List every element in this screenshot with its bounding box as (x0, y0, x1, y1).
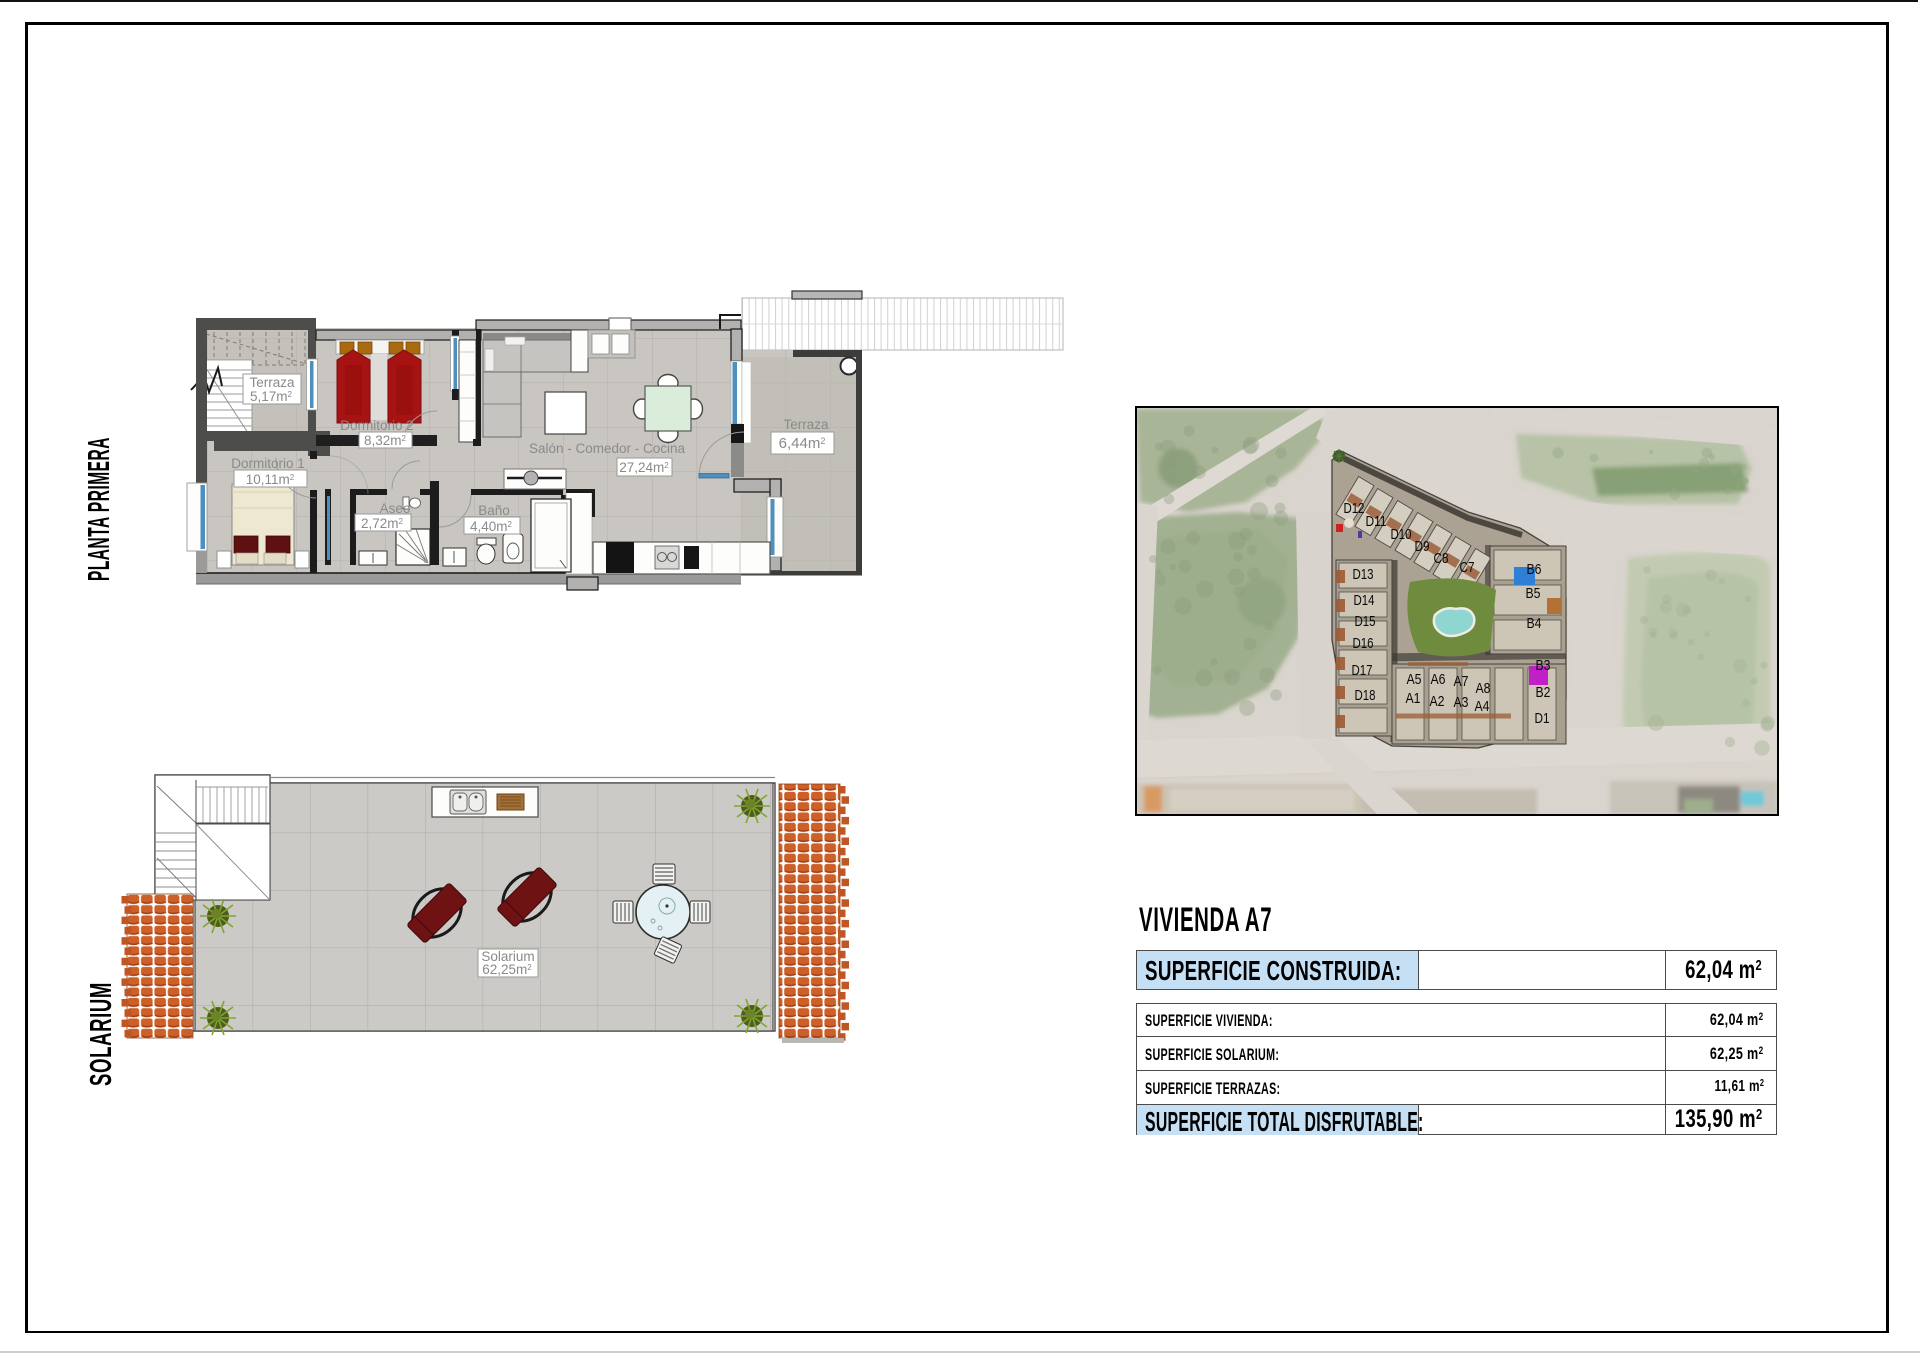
svg-text:D10: D10 (1391, 526, 1412, 543)
svg-text:Salón - Comedor - Cocina: Salón - Comedor - Cocina (529, 441, 686, 456)
svg-text:10,11m2: 10,11m2 (246, 472, 295, 487)
svg-text:D17: D17 (1352, 662, 1373, 679)
svg-text:D12: D12 (1344, 500, 1365, 517)
svg-text:Terraza: Terraza (783, 417, 829, 432)
svg-text:D16: D16 (1353, 635, 1374, 652)
svg-text:D11: D11 (1366, 513, 1387, 530)
svg-text:A2: A2 (1430, 693, 1445, 710)
svg-text:2,72m2: 2,72m2 (361, 516, 404, 531)
svg-text:D18: D18 (1355, 687, 1376, 704)
svg-text:Dormitorio 2: Dormitorio 2 (340, 418, 414, 433)
svg-text:C8: C8 (1434, 550, 1449, 567)
svg-text:B6: B6 (1527, 561, 1542, 578)
svg-text:5,17m2: 5,17m2 (250, 389, 293, 404)
svg-text:A4: A4 (1475, 698, 1490, 715)
svg-text:D9: D9 (1415, 538, 1430, 555)
svg-text:A3: A3 (1454, 694, 1469, 711)
svg-text:D1: D1 (1535, 710, 1550, 727)
svg-text:27,24m2: 27,24m2 (619, 460, 669, 475)
svg-text:B5: B5 (1526, 585, 1541, 602)
svg-text:Baño: Baño (478, 503, 510, 518)
svg-text:6,44m2: 6,44m2 (779, 435, 826, 452)
svg-text:A7: A7 (1454, 673, 1469, 690)
svg-text:A1: A1 (1406, 690, 1421, 707)
svg-text:Terraza: Terraza (249, 375, 295, 390)
svg-text:B3: B3 (1536, 657, 1551, 674)
svg-text:D13: D13 (1353, 566, 1374, 583)
svg-text:A6: A6 (1431, 671, 1446, 688)
svg-text:A8: A8 (1476, 680, 1491, 697)
svg-text:Dormitorio 1: Dormitorio 1 (231, 456, 305, 471)
svg-text:D15: D15 (1355, 613, 1376, 630)
svg-text:8,32m2: 8,32m2 (364, 433, 407, 448)
svg-text:B4: B4 (1527, 615, 1542, 632)
svg-text:C7: C7 (1460, 559, 1475, 576)
svg-text:62,25m2: 62,25m2 (482, 962, 532, 977)
svg-text:4,40m2: 4,40m2 (470, 519, 513, 534)
svg-text:A5: A5 (1407, 671, 1422, 688)
svg-text:D14: D14 (1354, 592, 1375, 609)
svg-text:B2: B2 (1536, 684, 1551, 701)
